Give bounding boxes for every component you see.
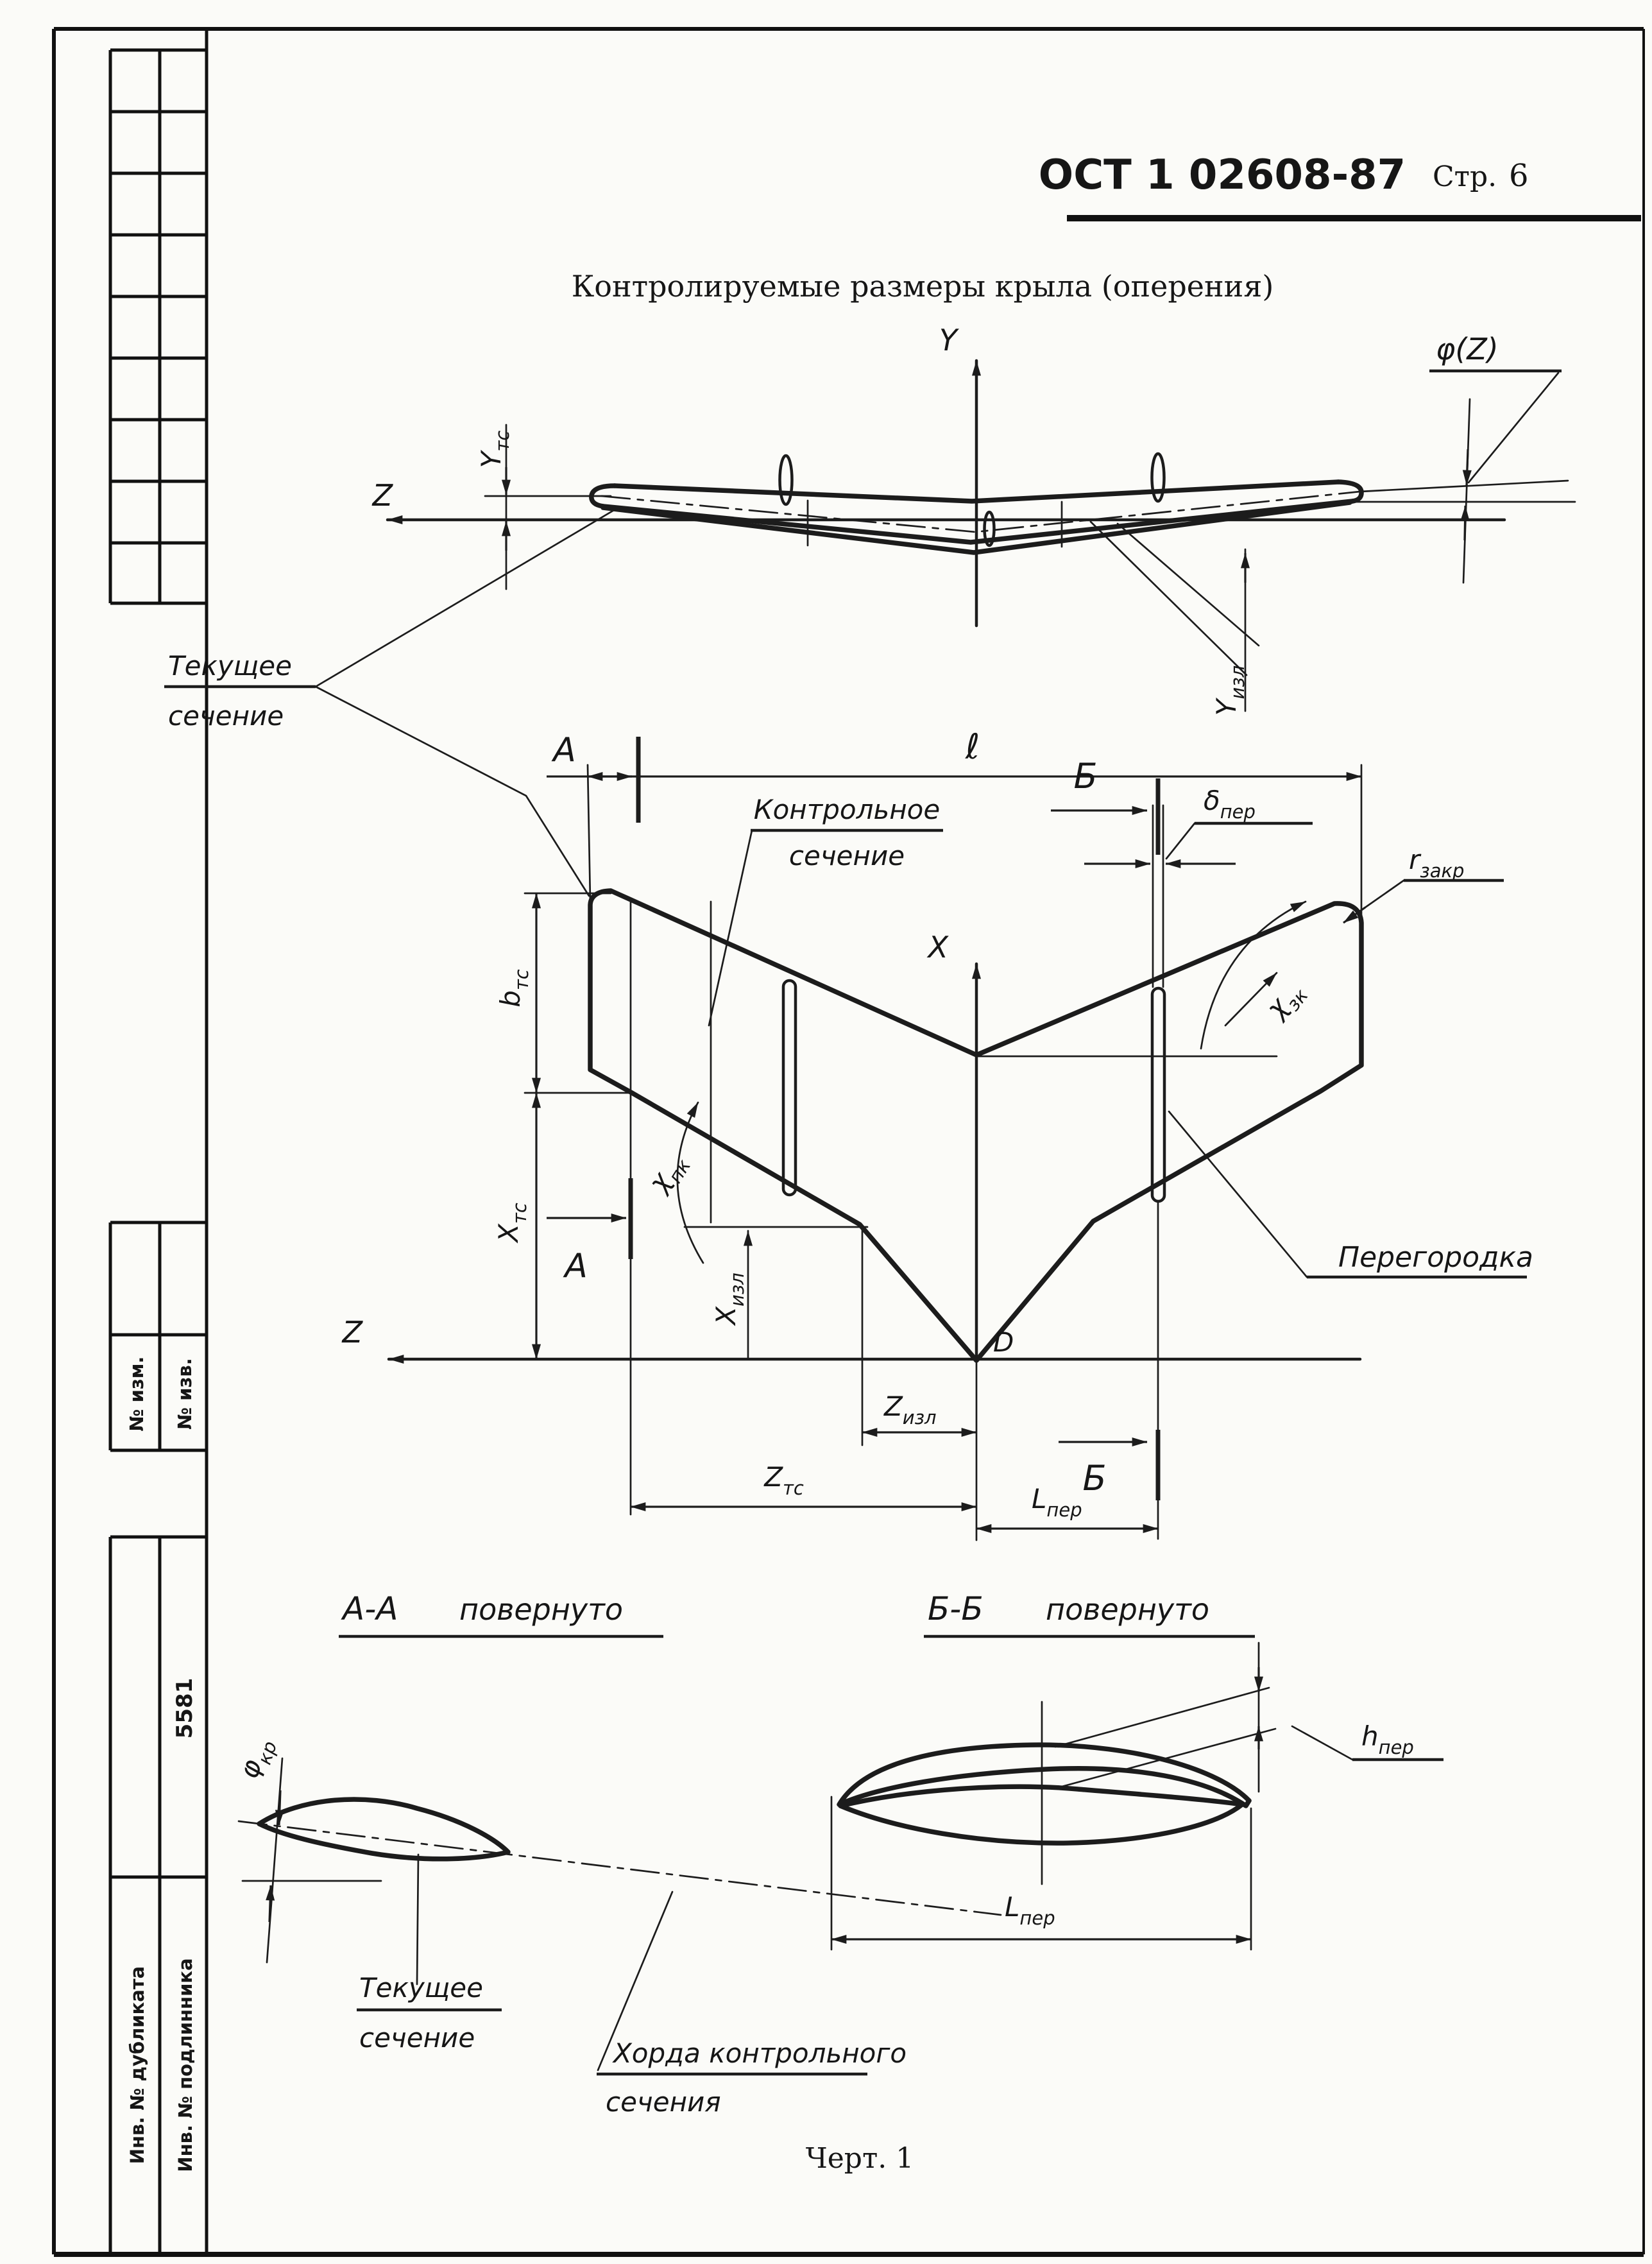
section-a-letter-plan: А <box>563 1247 588 1285</box>
aa-chord-line <box>239 1821 1001 1915</box>
section-aa-title-rotated: повернуто <box>459 1592 623 1627</box>
dimension-b-tc: bтс <box>495 893 632 1093</box>
point-d-label: D <box>993 1326 1014 1358</box>
drawing-sheet: № изм. № изв. 5581 Инв. № дубликата Инв.… <box>0 0 1652 2264</box>
construction-lines-plan <box>631 805 1163 1539</box>
x-tc-label: Xтс <box>493 1203 531 1244</box>
dimension-x-tc: Xтс <box>493 1093 536 1359</box>
delta-per-label: δпер <box>1204 785 1256 823</box>
sidebar-label-no-izm: № изм. <box>126 1357 148 1432</box>
z-tc-label: Zтс <box>763 1461 804 1499</box>
y-axis-label: Y <box>939 323 960 357</box>
peregorodka-callout: Перегородка <box>1169 1111 1533 1277</box>
delta-per-callout: δпер <box>1084 785 1313 864</box>
z-axis-label: Z <box>371 478 393 513</box>
phi-z-label: φ(Z) <box>1436 332 1499 366</box>
current-section-callout-front: Текущее сечение <box>164 508 617 896</box>
dimension-x-izl: Xизл <box>685 1227 867 1359</box>
chord-label-line2: сечения <box>606 2086 721 2118</box>
current-section-line1: Текущее <box>168 650 292 682</box>
section-bb-title-mark: Б-Б <box>928 1590 984 1627</box>
y-tc-label: Yтс <box>475 431 513 468</box>
plan-z-axis-label: Z <box>341 1315 363 1350</box>
plan-view: ℓ X Б δпер <box>341 726 1533 1540</box>
section-bb-title-rotated: повернуто <box>1046 1592 1209 1627</box>
page-number: 6 <box>1509 158 1529 194</box>
section-a-letter: А <box>551 731 576 769</box>
section-aa-title-mark: А-А <box>341 1590 398 1627</box>
phi-kr-label: φкр <box>232 1733 281 1784</box>
current-section-callout-aa: Текущее сечение <box>357 1855 502 2054</box>
section-aa-view: А-А повернуто φкр Текущее сечение Хорда … <box>232 1590 1001 2118</box>
section-b-marker-bottom: Б <box>1059 1430 1158 1500</box>
sidebar-code: 5581 <box>172 1678 198 1739</box>
x-izl-label: Xизл <box>710 1273 748 1326</box>
control-section-callout: Контрольное сечение <box>709 794 943 1025</box>
section-b-letter-top: Б <box>1073 756 1097 796</box>
aa-current-section-line2: сечение <box>359 2022 475 2054</box>
r-zakr-callout: rзакр <box>1343 844 1504 923</box>
sheet-title: Контролируемые размеры крыла (оперения) <box>572 269 1274 304</box>
dimension-l-per-plan: Lпер <box>976 1360 1158 1540</box>
chi-pk-label: χпк <box>642 1147 695 1201</box>
section-b-marker-top: Б <box>1051 756 1158 855</box>
aa-current-section-line1: Текущее <box>359 1972 483 2003</box>
l-per-plan-label: Lпер <box>1032 1483 1082 1521</box>
x-axis-label: X <box>926 930 949 965</box>
fence-slots-plan <box>783 981 1164 1201</box>
section-bb-title: Б-Б повернуто <box>924 1590 1255 1636</box>
page-word: Стр. <box>1433 160 1497 193</box>
dimension-y-tc: Yтс <box>475 425 611 589</box>
control-section-line2: сечение <box>789 840 905 871</box>
sidebar-label-inv-podlinnika: Инв. № подлинника <box>175 1958 196 2172</box>
section-a-marker-plan: А <box>547 1178 631 1285</box>
sheet-frame <box>54 29 1644 2254</box>
sidebar-grid-top <box>110 50 207 603</box>
section-bb-view: Б-Б повернуто hпер Lпер <box>831 1590 1443 1950</box>
section-aa-title: А-А повернуто <box>339 1590 663 1636</box>
z-izl-label: Zизл <box>883 1391 937 1428</box>
y-izl-label: Yизл <box>1211 665 1248 716</box>
sidebar-label-inv-dublikata: Инв. № дубликата <box>126 1966 148 2165</box>
span-label: ℓ <box>965 726 980 767</box>
dimension-y-izl: Yизл <box>1091 522 1259 716</box>
figure-caption: Черт. 1 <box>806 2142 914 2175</box>
h-per-label: hпер <box>1361 1720 1414 1758</box>
control-section-line1: Контрольное <box>754 794 940 825</box>
drawing-canvas: № изм. № изв. 5581 Инв. № дубликата Инв.… <box>0 0 1652 2264</box>
phi-z-measure: φ(Z) <box>1429 332 1562 583</box>
chord-extension-line <box>1360 481 1568 492</box>
chord-label-line1: Хорда контрольного <box>612 2037 907 2069</box>
dimension-z-tc: Zтс <box>631 1461 976 1507</box>
header: ОСТ 1 02608-87 Стр. 6 Контролируемые раз… <box>572 151 1641 304</box>
standard-number: ОСТ 1 02608-87 <box>1039 151 1406 199</box>
section-b-letter-bottom: Б <box>1082 1458 1106 1498</box>
sidebar-form: № изм. № изв. 5581 Инв. № дубликата Инв.… <box>110 50 207 2254</box>
peregorodka-label: Перегородка <box>1338 1241 1533 1274</box>
b-tc-label: bтс <box>495 969 532 1008</box>
current-section-line2: сечение <box>168 700 284 732</box>
phi-kr-angle: φкр <box>232 1733 282 1962</box>
chord-callout: Хорда контрольного сечения <box>597 1892 907 2118</box>
r-zakr-label: rзакр <box>1409 844 1464 882</box>
l-per-bb-label: Lпер <box>1005 1891 1055 1929</box>
sidebar-label-no-izv: № изв. <box>174 1358 196 1430</box>
